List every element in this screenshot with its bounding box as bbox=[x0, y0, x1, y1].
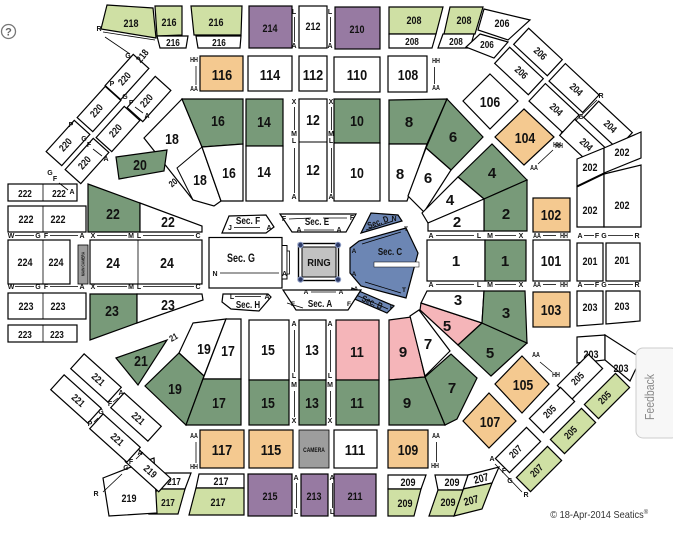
svg-text:17: 17 bbox=[221, 343, 235, 360]
svg-text:F: F bbox=[347, 301, 351, 308]
svg-text:216: 216 bbox=[212, 38, 226, 49]
svg-text:24: 24 bbox=[106, 255, 120, 272]
svg-text:216: 216 bbox=[166, 38, 180, 49]
svg-text:M: M bbox=[487, 233, 493, 240]
svg-text:F: F bbox=[129, 459, 134, 466]
svg-text:M: M bbox=[128, 233, 134, 240]
svg-text:13: 13 bbox=[305, 342, 319, 359]
svg-text:A: A bbox=[428, 233, 433, 240]
svg-text:1: 1 bbox=[501, 253, 509, 270]
svg-text:A: A bbox=[577, 282, 582, 289]
svg-text:216: 216 bbox=[209, 17, 224, 29]
svg-text:P: P bbox=[390, 304, 395, 311]
svg-text:219: 219 bbox=[122, 493, 137, 505]
svg-text:206: 206 bbox=[495, 18, 510, 30]
svg-text:15: 15 bbox=[261, 342, 275, 359]
svg-text:G: G bbox=[35, 284, 41, 291]
svg-text:AA: AA bbox=[532, 352, 540, 359]
svg-text:10: 10 bbox=[350, 113, 364, 130]
svg-text:F: F bbox=[44, 233, 49, 240]
svg-text:P: P bbox=[69, 122, 74, 129]
svg-text:8: 8 bbox=[405, 114, 413, 131]
svg-text:222: 222 bbox=[18, 189, 32, 200]
svg-text:104: 104 bbox=[515, 130, 536, 147]
svg-text:A: A bbox=[327, 43, 332, 50]
svg-text:14: 14 bbox=[257, 114, 271, 131]
svg-text:A: A bbox=[291, 43, 296, 50]
svg-text:18: 18 bbox=[193, 172, 207, 189]
svg-text:20: 20 bbox=[133, 157, 147, 174]
svg-text:M: M bbox=[291, 382, 297, 389]
svg-text:A: A bbox=[144, 113, 149, 120]
svg-text:105: 105 bbox=[513, 377, 534, 394]
svg-text:12: 12 bbox=[306, 162, 320, 179]
svg-text:211: 211 bbox=[348, 491, 363, 503]
svg-text:112: 112 bbox=[303, 67, 324, 84]
svg-text:202: 202 bbox=[583, 205, 598, 217]
svg-text:X: X bbox=[519, 233, 524, 240]
svg-text:HH: HH bbox=[552, 372, 560, 379]
svg-text:15: 15 bbox=[261, 395, 275, 412]
svg-text:10: 10 bbox=[350, 165, 364, 182]
svg-text:201: 201 bbox=[583, 256, 598, 268]
svg-text:116: 116 bbox=[212, 67, 233, 84]
svg-text:R: R bbox=[523, 492, 528, 499]
svg-text:6: 6 bbox=[449, 129, 457, 146]
svg-text:MAIN CAMERA: MAIN CAMERA bbox=[81, 252, 86, 276]
svg-text:AA: AA bbox=[432, 433, 440, 440]
svg-text:X: X bbox=[328, 418, 333, 425]
svg-text:A: A bbox=[336, 227, 341, 234]
svg-text:A: A bbox=[291, 321, 296, 328]
svg-text:A: A bbox=[293, 475, 298, 482]
svg-text:A: A bbox=[428, 282, 433, 289]
svg-text:A: A bbox=[489, 456, 494, 463]
svg-text:1: 1 bbox=[452, 253, 460, 270]
svg-text:202: 202 bbox=[615, 200, 630, 212]
svg-text:22: 22 bbox=[106, 206, 120, 223]
svg-text:© 18-Apr-2014 Seatics: © 18-Apr-2014 Seatics bbox=[550, 509, 644, 521]
svg-text:Sec. H: Sec. H bbox=[236, 300, 260, 311]
svg-text:217: 217 bbox=[211, 497, 226, 509]
svg-text:R: R bbox=[93, 491, 98, 498]
svg-text:223: 223 bbox=[19, 301, 34, 313]
svg-text:G: G bbox=[98, 409, 104, 416]
svg-text:F: F bbox=[129, 100, 134, 107]
svg-text:215: 215 bbox=[263, 491, 278, 503]
svg-text:203: 203 bbox=[615, 301, 630, 313]
svg-text:2: 2 bbox=[502, 206, 510, 223]
svg-text:A: A bbox=[327, 321, 332, 328]
svg-text:5: 5 bbox=[486, 345, 494, 362]
svg-text:L: L bbox=[294, 509, 299, 516]
svg-text:21: 21 bbox=[134, 353, 148, 370]
svg-text:224: 224 bbox=[18, 257, 34, 269]
svg-text:A: A bbox=[103, 156, 108, 163]
svg-text:A: A bbox=[339, 289, 344, 296]
svg-text:L: L bbox=[292, 138, 297, 145]
svg-text:C: C bbox=[195, 284, 200, 291]
svg-text:114: 114 bbox=[260, 67, 281, 84]
svg-text:106: 106 bbox=[480, 94, 501, 111]
svg-text:AA: AA bbox=[533, 233, 541, 240]
svg-text:A: A bbox=[79, 233, 84, 240]
svg-text:222: 222 bbox=[51, 214, 66, 226]
svg-text:109: 109 bbox=[398, 442, 419, 459]
svg-text:CAMERA: CAMERA bbox=[303, 447, 325, 454]
svg-text:24: 24 bbox=[160, 255, 174, 272]
svg-text:F: F bbox=[53, 176, 58, 183]
svg-text:7: 7 bbox=[424, 336, 432, 353]
svg-text:110: 110 bbox=[347, 67, 368, 84]
svg-text:A: A bbox=[291, 194, 296, 201]
svg-text:P: P bbox=[88, 421, 93, 428]
svg-text:23: 23 bbox=[161, 297, 175, 314]
svg-text:X: X bbox=[91, 284, 96, 291]
svg-text:M: M bbox=[328, 131, 334, 138]
svg-text:19: 19 bbox=[197, 341, 211, 358]
svg-text:218: 218 bbox=[124, 18, 139, 30]
svg-text:11: 11 bbox=[350, 344, 364, 361]
svg-text:G: G bbox=[601, 282, 607, 289]
svg-text:L: L bbox=[328, 9, 333, 16]
svg-text:X: X bbox=[292, 418, 297, 425]
svg-text:AA: AA bbox=[432, 85, 440, 92]
svg-text:P: P bbox=[110, 81, 115, 88]
svg-text:A: A bbox=[118, 390, 123, 397]
svg-text:4: 4 bbox=[488, 165, 497, 182]
svg-text:223: 223 bbox=[51, 301, 66, 313]
svg-text:11: 11 bbox=[350, 395, 364, 412]
svg-text:102: 102 bbox=[541, 207, 562, 224]
svg-text:HH: HH bbox=[431, 463, 439, 470]
svg-text:W: W bbox=[8, 233, 15, 240]
svg-text:N: N bbox=[212, 271, 217, 278]
svg-text:R: R bbox=[634, 233, 639, 240]
svg-text:F: F bbox=[87, 142, 92, 149]
svg-text:L: L bbox=[477, 282, 482, 289]
svg-text:HH: HH bbox=[560, 282, 568, 289]
svg-text:209: 209 bbox=[441, 497, 456, 509]
svg-text:202: 202 bbox=[615, 147, 630, 159]
svg-text:103: 103 bbox=[541, 302, 562, 319]
svg-text:209: 209 bbox=[401, 477, 416, 489]
svg-text:206: 206 bbox=[480, 40, 494, 51]
svg-text:W: W bbox=[8, 284, 15, 291]
svg-text:111: 111 bbox=[345, 442, 366, 459]
svg-text:Sec. F: Sec. F bbox=[236, 216, 260, 227]
svg-text:2: 2 bbox=[453, 214, 461, 231]
svg-text:RING: RING bbox=[307, 257, 330, 269]
svg-text:3: 3 bbox=[502, 305, 510, 322]
svg-text:F: F bbox=[595, 282, 600, 289]
svg-text:L: L bbox=[137, 233, 142, 240]
svg-text:210: 210 bbox=[350, 24, 365, 36]
svg-text:213: 213 bbox=[307, 491, 322, 503]
svg-text:®: ® bbox=[644, 509, 649, 516]
svg-text:J: J bbox=[228, 225, 232, 232]
svg-text:16: 16 bbox=[222, 165, 236, 182]
svg-text:Sec. A: Sec. A bbox=[308, 299, 332, 310]
svg-text:L: L bbox=[328, 373, 333, 380]
svg-text:G: G bbox=[122, 94, 128, 101]
svg-text:18: 18 bbox=[165, 131, 179, 148]
svg-text:5: 5 bbox=[443, 318, 451, 335]
svg-text:117: 117 bbox=[212, 442, 233, 459]
svg-text:A: A bbox=[79, 284, 84, 291]
svg-text:22: 22 bbox=[161, 214, 175, 231]
svg-text:223: 223 bbox=[18, 330, 32, 341]
svg-text:201: 201 bbox=[615, 255, 630, 267]
svg-text:223: 223 bbox=[50, 330, 64, 341]
svg-text:F: F bbox=[282, 216, 287, 223]
svg-text:A: A bbox=[577, 233, 582, 240]
svg-text:L: L bbox=[329, 138, 334, 145]
svg-text:9: 9 bbox=[399, 344, 407, 361]
svg-text:6: 6 bbox=[424, 170, 432, 187]
svg-text:X: X bbox=[519, 282, 524, 289]
svg-text:L: L bbox=[292, 373, 297, 380]
svg-text:A: A bbox=[69, 189, 74, 196]
svg-text:R: R bbox=[598, 93, 603, 100]
svg-text:214: 214 bbox=[263, 23, 279, 35]
svg-text:HH: HH bbox=[190, 57, 198, 64]
svg-text:A: A bbox=[264, 294, 269, 301]
svg-text:G: G bbox=[35, 233, 41, 240]
svg-text:HH: HH bbox=[432, 58, 440, 65]
svg-text:M: M bbox=[128, 284, 134, 291]
svg-text:T: T bbox=[402, 287, 406, 294]
svg-text:16: 16 bbox=[211, 113, 225, 130]
svg-text:?: ? bbox=[5, 27, 12, 39]
svg-text:9: 9 bbox=[403, 395, 411, 412]
svg-text:108: 108 bbox=[398, 67, 419, 84]
svg-text:F: F bbox=[108, 401, 113, 408]
svg-text:19: 19 bbox=[168, 381, 182, 398]
svg-text:F: F bbox=[350, 215, 355, 222]
svg-text:L: L bbox=[230, 294, 235, 301]
svg-text:8: 8 bbox=[396, 166, 404, 183]
svg-text:M: M bbox=[291, 131, 297, 138]
svg-text:F: F bbox=[44, 284, 49, 291]
svg-text:4: 4 bbox=[446, 192, 455, 209]
svg-text:Sec. E: Sec. E bbox=[305, 217, 330, 228]
svg-text:208: 208 bbox=[457, 15, 472, 27]
svg-text:M: M bbox=[327, 382, 333, 389]
svg-text:12: 12 bbox=[306, 112, 320, 129]
svg-text:212: 212 bbox=[306, 21, 321, 33]
svg-text:HH: HH bbox=[555, 143, 563, 150]
svg-text:A: A bbox=[352, 271, 357, 278]
svg-text:222: 222 bbox=[19, 214, 34, 226]
svg-text:L: L bbox=[330, 509, 335, 516]
svg-text:R: R bbox=[634, 282, 639, 289]
svg-text:L: L bbox=[477, 233, 482, 240]
svg-text:13: 13 bbox=[305, 395, 319, 412]
svg-text:A: A bbox=[304, 289, 309, 296]
svg-text:M: M bbox=[487, 282, 493, 289]
svg-text:A: A bbox=[282, 271, 287, 278]
svg-text:T: T bbox=[404, 226, 408, 233]
svg-text:L: L bbox=[292, 9, 297, 16]
svg-text:3: 3 bbox=[454, 292, 462, 309]
svg-text:X: X bbox=[91, 233, 96, 240]
svg-text:G: G bbox=[123, 465, 129, 472]
svg-text:F: F bbox=[595, 233, 600, 240]
svg-text:101: 101 bbox=[541, 253, 562, 270]
svg-text:A: A bbox=[328, 194, 333, 201]
svg-text:115: 115 bbox=[261, 442, 282, 459]
svg-text:N: N bbox=[391, 216, 396, 223]
svg-text:208: 208 bbox=[407, 15, 422, 27]
svg-text:208: 208 bbox=[405, 37, 419, 48]
svg-text:G: G bbox=[601, 233, 607, 240]
svg-text:107: 107 bbox=[480, 414, 501, 431]
svg-text:17: 17 bbox=[212, 395, 226, 412]
svg-text:AA: AA bbox=[190, 433, 198, 440]
svg-text:209: 209 bbox=[445, 477, 460, 489]
svg-text:HH: HH bbox=[560, 233, 568, 240]
svg-text:222: 222 bbox=[52, 189, 66, 200]
svg-text:Feedback: Feedback bbox=[642, 374, 657, 421]
svg-text:AA: AA bbox=[530, 165, 538, 172]
svg-text:208: 208 bbox=[449, 37, 463, 48]
svg-text:R: R bbox=[96, 26, 101, 33]
svg-text:A: A bbox=[266, 225, 271, 232]
svg-text:217: 217 bbox=[161, 498, 175, 509]
svg-text:224: 224 bbox=[49, 257, 65, 269]
svg-text:A: A bbox=[329, 475, 334, 482]
svg-text:Sec. C: Sec. C bbox=[378, 247, 402, 258]
svg-text:HH: HH bbox=[190, 464, 198, 471]
svg-text:202: 202 bbox=[583, 162, 598, 174]
svg-text:A: A bbox=[296, 227, 301, 234]
svg-text:C: C bbox=[195, 233, 200, 240]
svg-text:14: 14 bbox=[257, 164, 271, 181]
svg-text:Sec. G: Sec. G bbox=[227, 253, 255, 265]
svg-text:L: L bbox=[137, 284, 142, 291]
svg-text:7: 7 bbox=[448, 380, 456, 397]
svg-text:X: X bbox=[292, 99, 297, 106]
svg-text:216: 216 bbox=[162, 17, 177, 29]
svg-text:203: 203 bbox=[583, 302, 598, 314]
svg-text:23: 23 bbox=[105, 303, 119, 320]
svg-text:209: 209 bbox=[398, 498, 413, 510]
svg-text:217: 217 bbox=[214, 476, 229, 488]
svg-text:A: A bbox=[352, 248, 357, 255]
svg-text:AA: AA bbox=[190, 86, 198, 93]
svg-text:AA: AA bbox=[533, 282, 541, 289]
svg-text:X: X bbox=[329, 99, 334, 106]
